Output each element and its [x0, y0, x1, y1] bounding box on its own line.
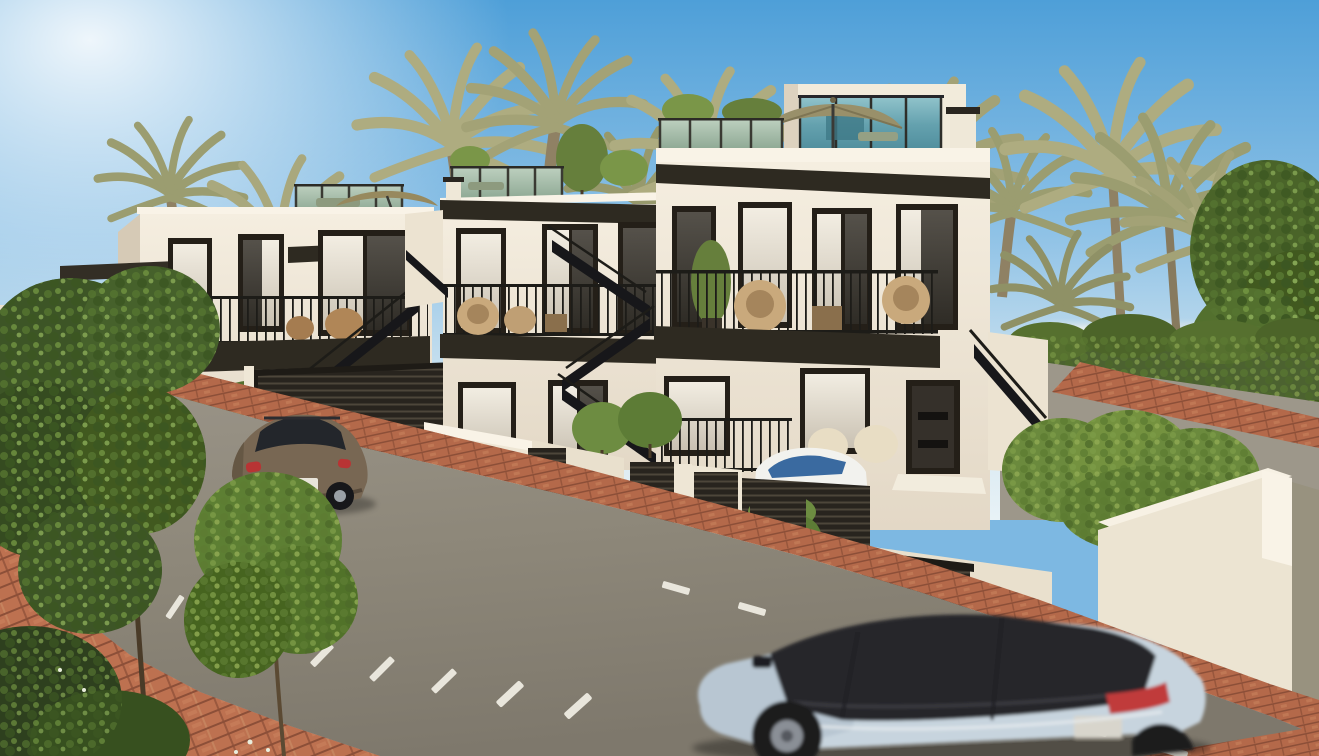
street-scene-render	[0, 0, 1319, 756]
house-2-balcony	[440, 284, 670, 364]
